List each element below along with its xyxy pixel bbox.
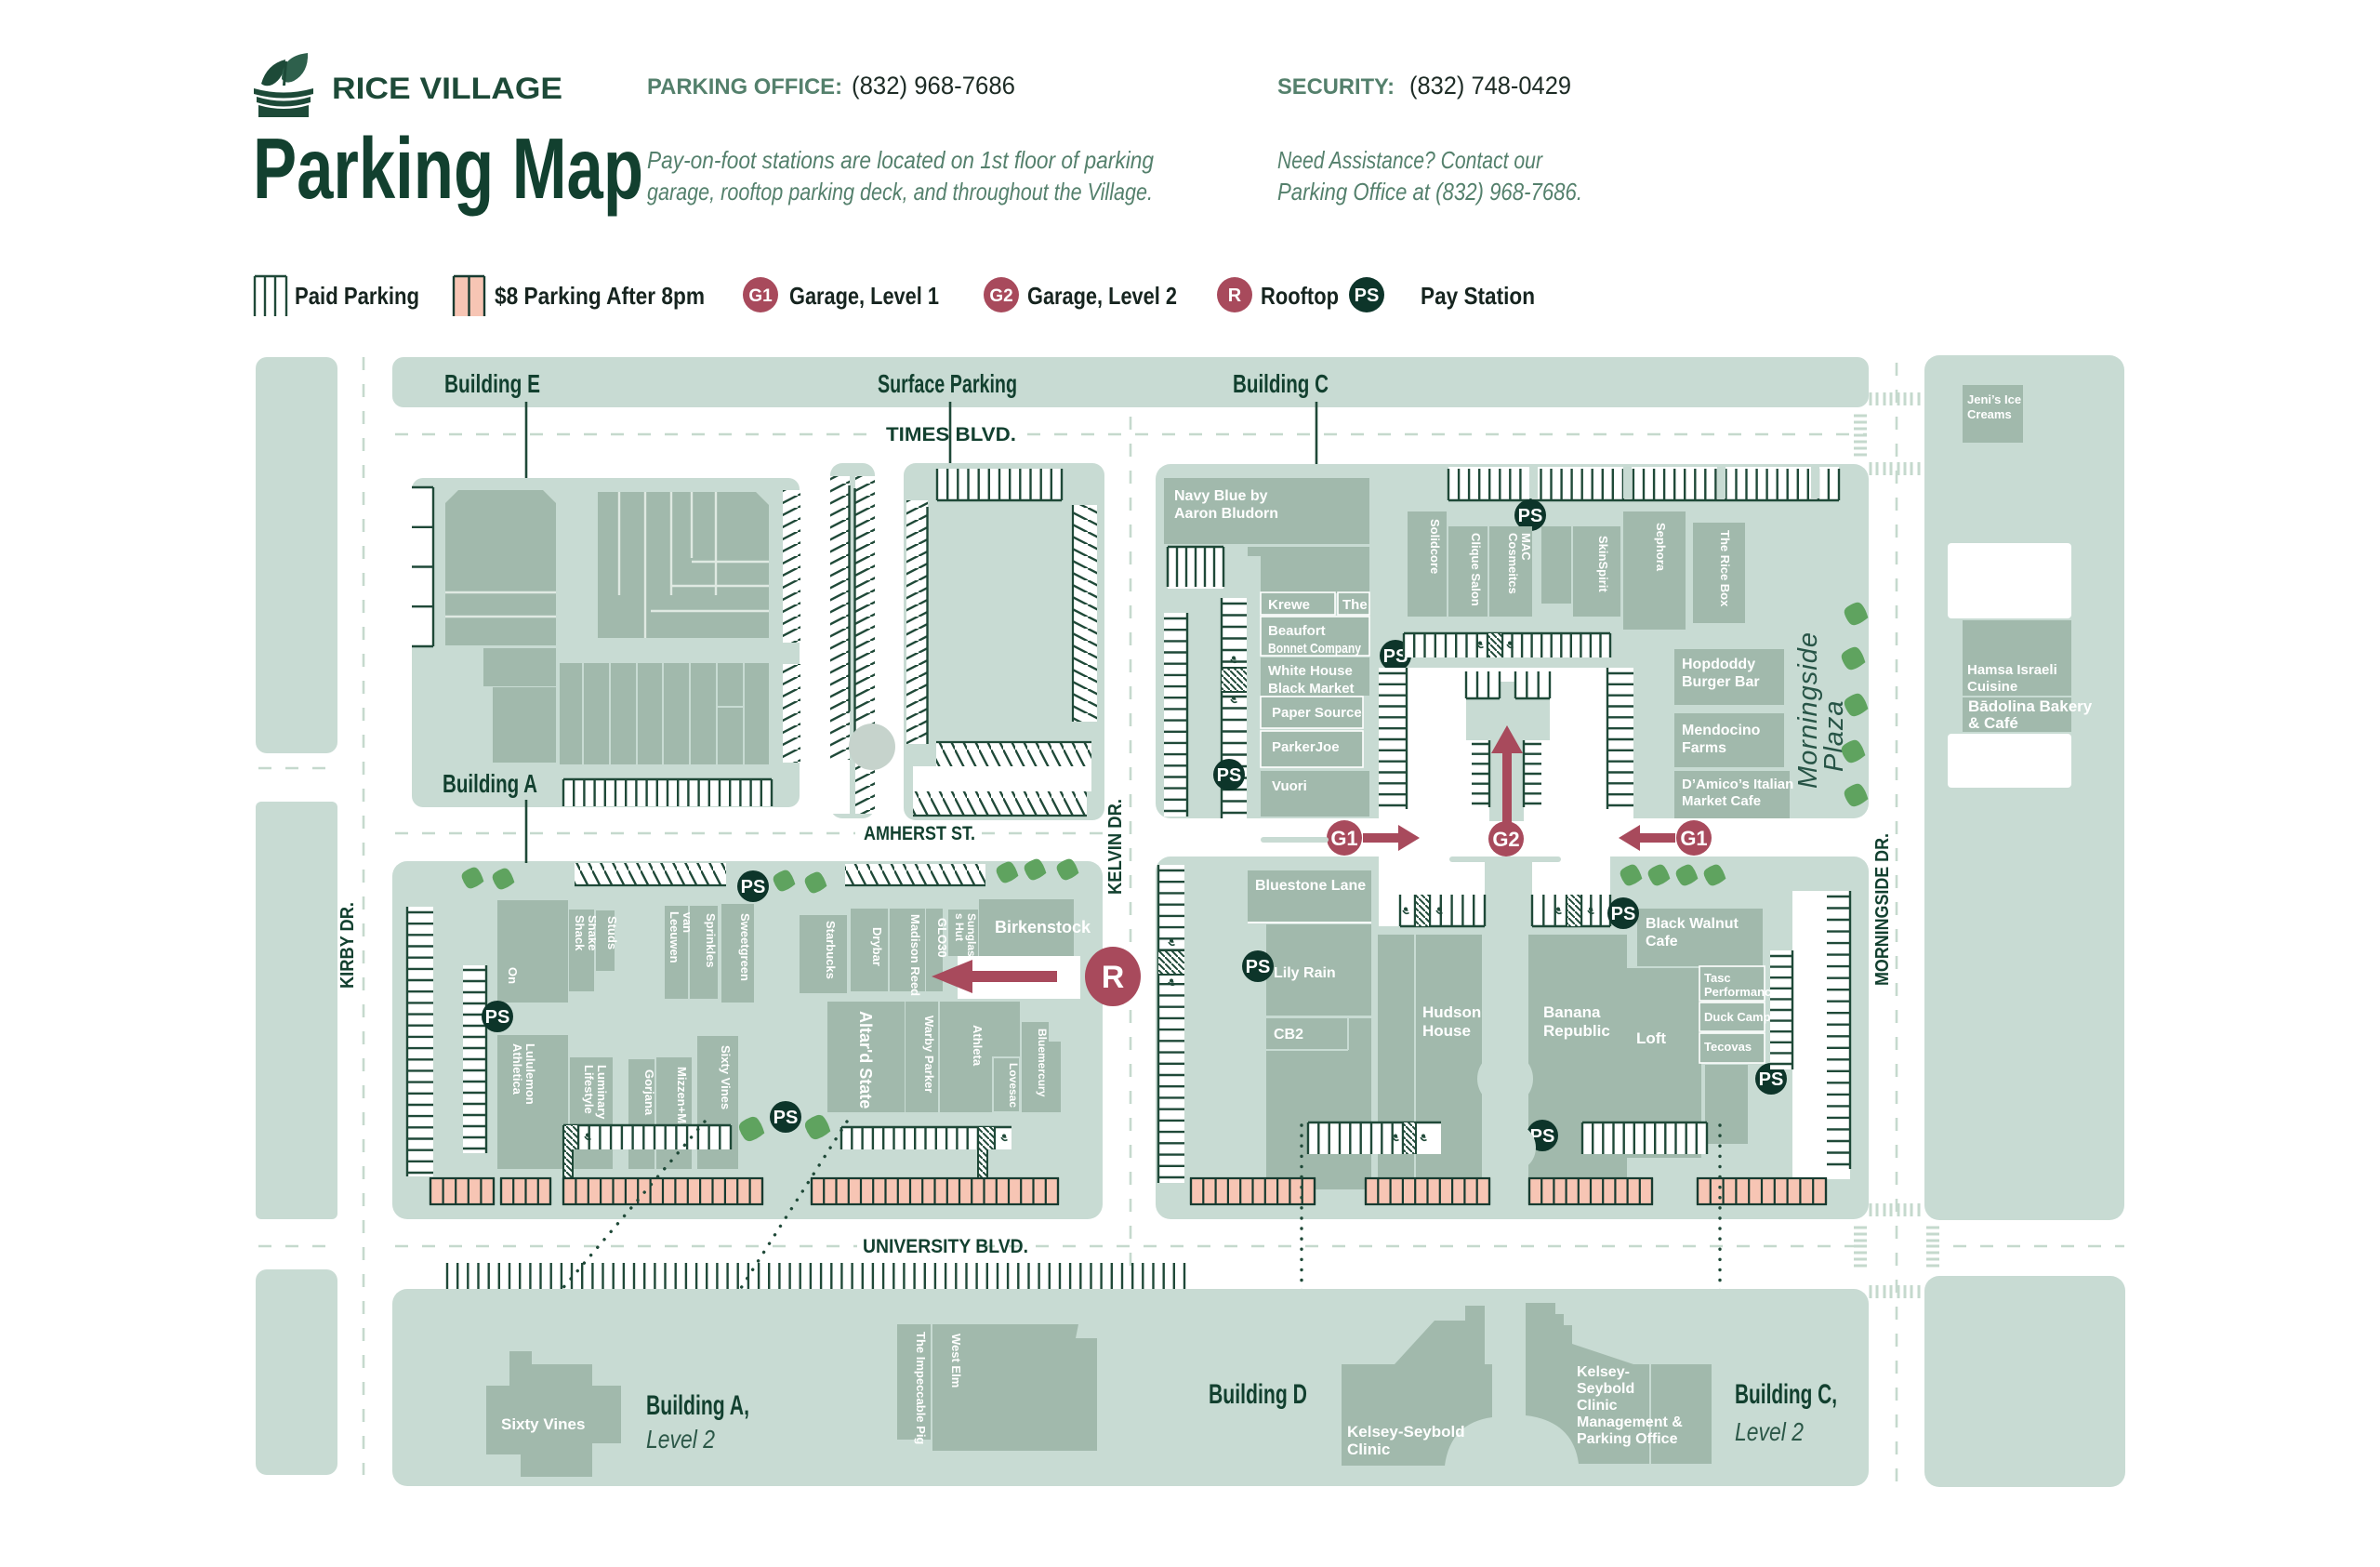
svg-text:UNIVERSITY BLVD.: UNIVERSITY BLVD. bbox=[863, 1236, 1028, 1257]
svg-text:Burger Bar: Burger Bar bbox=[1682, 674, 1760, 690]
svg-text:Navy Blue by: Navy Blue by bbox=[1174, 488, 1268, 504]
svg-text:Building D: Building D bbox=[1209, 1379, 1307, 1410]
svg-text:Cosmeitcs: Cosmeitcs bbox=[1506, 533, 1520, 594]
svg-text:Paid Parking: Paid Parking bbox=[295, 282, 419, 310]
svg-text:Level 2: Level 2 bbox=[646, 1425, 715, 1454]
svg-text:Banana: Banana bbox=[1543, 1003, 1601, 1021]
svg-text:MORNINGSIDE DR.: MORNINGSIDE DR. bbox=[1872, 833, 1893, 986]
svg-text:Jeni’s Ice: Jeni’s Ice bbox=[1967, 392, 2021, 406]
svg-text:Tecovas: Tecovas bbox=[1704, 1040, 1752, 1054]
svg-text:G2: G2 bbox=[1492, 828, 1519, 851]
svg-text:Sixty Vines: Sixty Vines bbox=[719, 1045, 733, 1109]
svg-text:Duck Camp: Duck Camp bbox=[1704, 1010, 1771, 1024]
svg-text:Sephora: Sephora bbox=[1654, 523, 1668, 572]
svg-text:G2: G2 bbox=[989, 286, 1012, 306]
svg-text:Lululemon: Lululemon bbox=[523, 1043, 537, 1105]
svg-text:Warby Parker: Warby Parker bbox=[922, 1016, 936, 1093]
svg-text:Lovesac: Lovesac bbox=[1007, 1063, 1020, 1108]
svg-text:D’Amico’s Italian: D’Amico’s Italian bbox=[1682, 777, 1793, 792]
svg-text:Hudson: Hudson bbox=[1422, 1003, 1481, 1021]
svg-text:House: House bbox=[1422, 1022, 1471, 1040]
svg-text:Lifestyle: Lifestyle bbox=[582, 1065, 596, 1114]
svg-text:Sunglas: Sunglas bbox=[965, 913, 978, 957]
svg-text:Building A: Building A bbox=[443, 769, 537, 798]
svg-text:Madison Reed: Madison Reed bbox=[908, 914, 922, 996]
svg-text:Aaron Bludorn: Aaron Bludorn bbox=[1174, 506, 1278, 522]
svg-text:Altar'd State: Altar'd State bbox=[856, 1011, 875, 1109]
svg-text:SkinSpirit: SkinSpirit bbox=[1596, 536, 1610, 592]
svg-text:RICE VILLAGE: RICE VILLAGE bbox=[332, 72, 562, 105]
svg-text:Kelsey-Seybold: Kelsey-Seybold bbox=[1347, 1423, 1465, 1441]
svg-text:Building A,: Building A, bbox=[646, 1390, 749, 1421]
svg-text:Tasc: Tasc bbox=[1704, 971, 1731, 985]
svg-text:Studs: Studs bbox=[605, 916, 619, 949]
svg-text:PS: PS bbox=[741, 877, 766, 897]
svg-text:Mendocino: Mendocino bbox=[1682, 723, 1761, 738]
svg-text:The: The bbox=[1342, 597, 1368, 613]
svg-text:PS: PS bbox=[1611, 904, 1636, 924]
svg-text:PS: PS bbox=[1246, 957, 1271, 977]
svg-text:Pay-on-foot stations are locat: Pay-on-foot stations are located on 1st … bbox=[647, 146, 1154, 174]
svg-text:Vuori: Vuori bbox=[1272, 778, 1307, 794]
svg-text:Sprinkles: Sprinkles bbox=[704, 913, 718, 968]
svg-text:G1: G1 bbox=[1330, 827, 1357, 850]
svg-text:Sixty Vines: Sixty Vines bbox=[501, 1415, 585, 1433]
svg-text:PS: PS bbox=[773, 1108, 799, 1128]
svg-text:Gorjana: Gorjana bbox=[642, 1069, 656, 1116]
svg-text:On: On bbox=[506, 967, 520, 984]
svg-text:Management &: Management & bbox=[1577, 1414, 1683, 1430]
svg-text:West Elm: West Elm bbox=[949, 1334, 963, 1388]
svg-text:Surface Parking: Surface Parking bbox=[878, 369, 1017, 398]
svg-text:Kelsey-: Kelsey- bbox=[1577, 1364, 1630, 1380]
svg-text:Clinic: Clinic bbox=[1347, 1441, 1390, 1458]
svg-text:AMHERST ST.: AMHERST ST. bbox=[864, 823, 975, 844]
svg-text:Shack: Shack bbox=[573, 915, 587, 951]
svg-text:& Café: & Café bbox=[1968, 714, 2018, 732]
svg-text:Creams: Creams bbox=[1967, 407, 2012, 421]
svg-text:PS: PS bbox=[1518, 506, 1543, 526]
svg-text:Clinic: Clinic bbox=[1577, 1398, 1618, 1414]
svg-text:Birkenstock: Birkenstock bbox=[995, 918, 1091, 936]
svg-text:Lily Rain: Lily Rain bbox=[1274, 965, 1336, 981]
svg-text:Farms: Farms bbox=[1682, 740, 1726, 756]
svg-text:Cafe: Cafe bbox=[1646, 934, 1678, 949]
svg-text:G1: G1 bbox=[1680, 827, 1707, 850]
svg-text:Performance: Performance bbox=[1704, 985, 1778, 999]
svg-text:Luminary: Luminary bbox=[595, 1065, 609, 1120]
svg-text:(832) 968-7686: (832) 968-7686 bbox=[852, 72, 1015, 100]
svg-text:Bluestone Lane: Bluestone Lane bbox=[1255, 878, 1366, 894]
svg-text:Clique Salon: Clique Salon bbox=[1469, 533, 1483, 606]
svg-text:Plaza: Plaza bbox=[1819, 699, 1849, 772]
svg-text:Athletica: Athletica bbox=[510, 1043, 524, 1096]
svg-text:s Hut: s Hut bbox=[953, 913, 966, 941]
svg-text:CB2: CB2 bbox=[1274, 1027, 1303, 1042]
svg-text:Beaufort: Beaufort bbox=[1268, 623, 1326, 639]
svg-text:(832) 748-0429: (832) 748-0429 bbox=[1409, 72, 1571, 100]
svg-text:Drybar: Drybar bbox=[870, 927, 884, 966]
svg-text:Cuisine: Cuisine bbox=[1967, 679, 2017, 695]
svg-text:Athleta: Athleta bbox=[971, 1025, 985, 1067]
svg-text:Krewe: Krewe bbox=[1268, 597, 1310, 613]
svg-text:Building E: Building E bbox=[444, 369, 540, 398]
svg-text:KIRBY DR.: KIRBY DR. bbox=[337, 902, 358, 989]
svg-text:GLO30: GLO30 bbox=[935, 918, 949, 958]
svg-text:Pay Station: Pay Station bbox=[1421, 282, 1535, 310]
svg-text:PS: PS bbox=[1355, 286, 1380, 306]
svg-text:R: R bbox=[1102, 960, 1125, 995]
svg-text:KELVIN DR.: KELVIN DR. bbox=[1105, 799, 1126, 895]
svg-text:SECURITY:: SECURITY: bbox=[1277, 74, 1395, 100]
svg-text:Garage, Level 1: Garage, Level 1 bbox=[789, 282, 939, 310]
svg-text:Need Assistance? Contact our: Need Assistance? Contact our bbox=[1277, 146, 1543, 174]
svg-text:Building C: Building C bbox=[1233, 369, 1329, 398]
svg-text:Loft: Loft bbox=[1636, 1029, 1666, 1047]
svg-text:R: R bbox=[1228, 286, 1242, 306]
svg-text:Seybold: Seybold bbox=[1577, 1381, 1634, 1397]
svg-text:Rooftop: Rooftop bbox=[1261, 282, 1339, 310]
svg-text:Bādolina Bakery: Bādolina Bakery bbox=[1968, 697, 2093, 715]
svg-text:Building C,: Building C, bbox=[1735, 1379, 1837, 1410]
svg-text:Leeuwen: Leeuwen bbox=[668, 911, 681, 963]
svg-text:The Rice Box: The Rice Box bbox=[1718, 530, 1732, 607]
svg-text:White House: White House bbox=[1268, 663, 1353, 679]
svg-text:$8 Parking After 8pm: $8 Parking After 8pm bbox=[495, 282, 705, 310]
svg-text:Market Cafe: Market Cafe bbox=[1682, 793, 1761, 809]
svg-text:Starbucks: Starbucks bbox=[824, 921, 838, 979]
svg-text:garage, rooftop parking deck,: garage, rooftop parking deck, and throug… bbox=[647, 178, 1153, 206]
svg-text:Solidcore: Solidcore bbox=[1428, 519, 1442, 574]
svg-text:Sweetgreen: Sweetgreen bbox=[738, 913, 752, 981]
svg-text:Republic: Republic bbox=[1543, 1022, 1610, 1040]
svg-text:Bluemercury: Bluemercury bbox=[1036, 1029, 1049, 1097]
svg-text:Parking Office: Parking Office bbox=[1577, 1431, 1678, 1447]
svg-text:MAC: MAC bbox=[1519, 533, 1533, 561]
svg-text:Garage, Level 2: Garage, Level 2 bbox=[1027, 282, 1177, 310]
svg-text:Parking Office at (832) 968-76: Parking Office at (832) 968-7686. bbox=[1277, 178, 1582, 206]
svg-text:Paper Source: Paper Source bbox=[1272, 705, 1362, 721]
svg-text:PS: PS bbox=[1217, 765, 1242, 786]
svg-text:PS: PS bbox=[1759, 1069, 1784, 1090]
svg-text:PARKING OFFICE:: PARKING OFFICE: bbox=[647, 74, 842, 100]
svg-text:The Impeccable Pig: The Impeccable Pig bbox=[914, 1332, 928, 1444]
svg-text:Bonnet Company: Bonnet Company bbox=[1268, 641, 1362, 657]
svg-text:Hamsa Israeli: Hamsa Israeli bbox=[1967, 662, 2057, 678]
svg-text:Hopdoddy: Hopdoddy bbox=[1682, 657, 1755, 672]
svg-text:Black Walnut: Black Walnut bbox=[1646, 916, 1739, 932]
svg-text:ParkerJoe: ParkerJoe bbox=[1272, 739, 1340, 755]
svg-text:Black Market: Black Market bbox=[1268, 681, 1355, 697]
svg-text:Parking Map: Parking Map bbox=[253, 120, 643, 217]
svg-text:PS: PS bbox=[485, 1007, 510, 1028]
svg-text:Level 2: Level 2 bbox=[1735, 1417, 1804, 1446]
svg-text:G1: G1 bbox=[748, 286, 773, 306]
